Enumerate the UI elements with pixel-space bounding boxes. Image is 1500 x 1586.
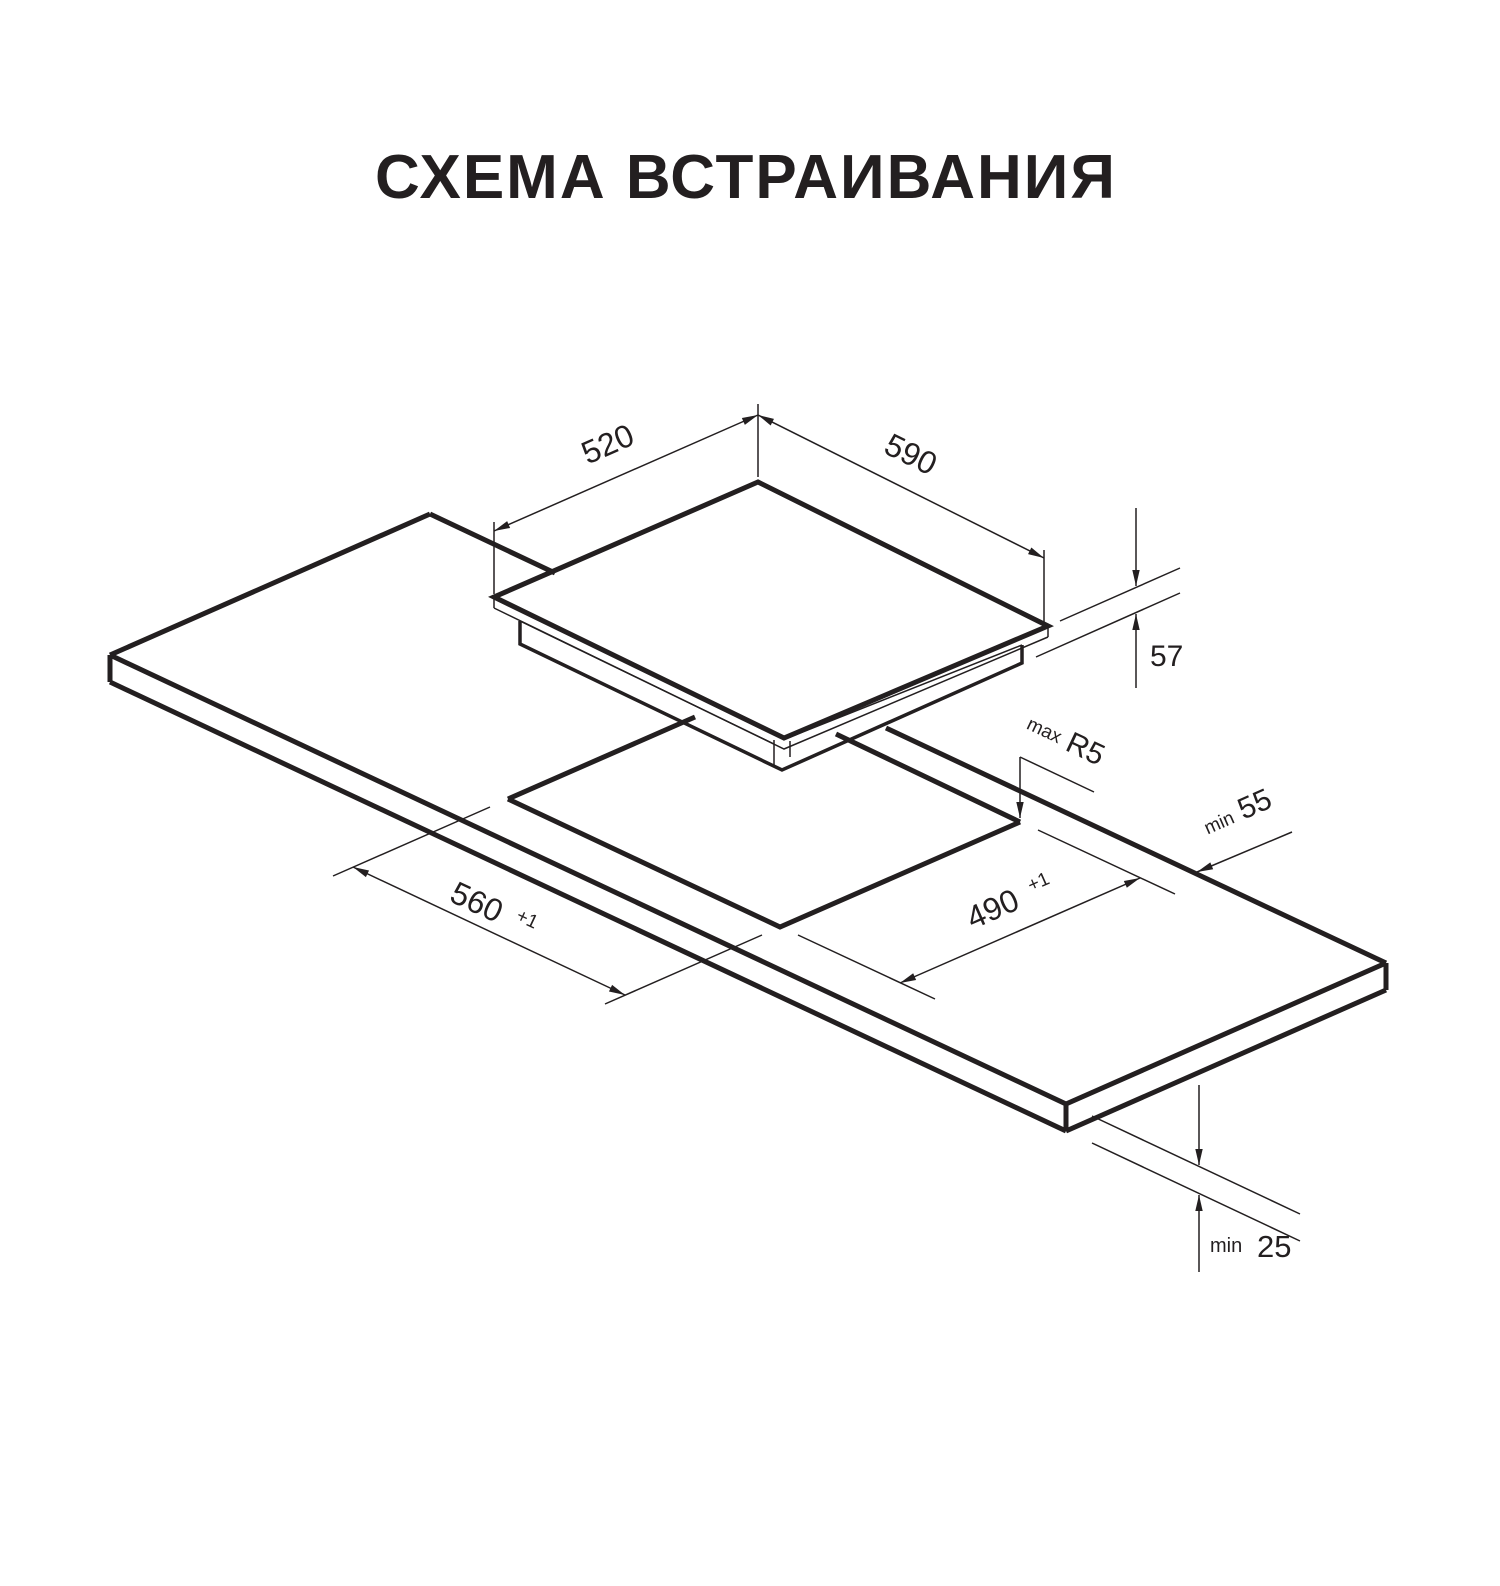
installation-diagram: СХЕМА ВСТРАИВАНИЯ	[0, 0, 1500, 1586]
background	[0, 0, 1500, 1586]
min-25-label: 25	[1257, 1229, 1291, 1264]
dim-57-label: 57	[1150, 640, 1183, 673]
min-25-qualifier: min	[1210, 1235, 1242, 1257]
page-title: СХЕМА ВСТРАИВАНИЯ	[375, 143, 1117, 212]
page: СХЕМА ВСТРАИВАНИЯ	[0, 0, 1500, 1586]
